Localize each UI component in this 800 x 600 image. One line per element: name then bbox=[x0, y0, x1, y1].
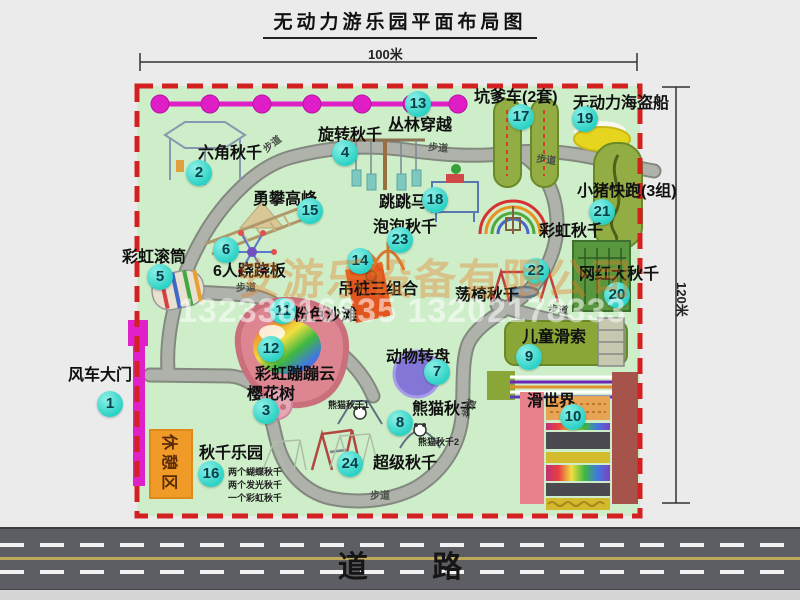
dimension-top-label: 100米 bbox=[368, 44, 403, 63]
facility-marker-jumping-horse: 18 bbox=[422, 187, 448, 213]
watermark-phone: 13233816635 13202178333 bbox=[178, 292, 626, 331]
facility-label-kengdie-car: 坑爹车(2套) bbox=[474, 90, 558, 106]
below-road-strip bbox=[0, 590, 800, 600]
facility-label-rainbow-roller: 彩虹滚筒 bbox=[122, 250, 186, 266]
walkway-label-1: 步道 bbox=[428, 143, 449, 155]
facility-marker-kids-zipline: 9 bbox=[516, 344, 542, 370]
facility-marker-rotating-swing: 4 bbox=[332, 140, 358, 166]
facility-marker-windmill-gate: 1 bbox=[97, 391, 123, 417]
page-root: 无动力游乐园平面布局图 100米 120米 bbox=[0, 0, 800, 600]
facility-marker-climbing-peak: 15 bbox=[297, 198, 323, 224]
facility-marker-swing-park: 16 bbox=[198, 461, 224, 487]
walkway-label-2: 步道 bbox=[535, 155, 556, 168]
facility-marker-piggy-run: 21 bbox=[589, 199, 615, 225]
facility-label-swing-park: 秋千乐园 bbox=[199, 446, 263, 462]
facility-marker-six-seesaw: 6 bbox=[213, 237, 239, 263]
facility-label-piggy-run: 小猪快跑(3组) bbox=[577, 184, 677, 200]
sub-label-2: 两个蝴蝶秋千 bbox=[228, 468, 282, 477]
rest-area-label: 休憩区 bbox=[159, 434, 183, 494]
walkway-label-6: 步道 bbox=[370, 492, 390, 502]
facility-label-rainbow-swing: 彩虹秋千 bbox=[539, 224, 603, 240]
facility-marker-pirate-ship: 19 bbox=[572, 106, 598, 132]
facility-label-jungle-crossing: 丛林穿越 bbox=[388, 118, 452, 134]
sub-label-4: 一个彩虹秋千 bbox=[228, 494, 282, 503]
facility-label-jumping-horse: 跳跳马 bbox=[379, 195, 427, 211]
facility-marker-rainbow-bounce-cloud: 12 bbox=[258, 336, 284, 362]
road: 道 路 bbox=[0, 527, 800, 592]
facility-marker-rainbow-roller: 5 bbox=[147, 264, 173, 290]
walkway-label-0: 步道 bbox=[262, 135, 284, 155]
facility-label-hexagon-swing: 六角秋千 bbox=[198, 146, 262, 162]
sub-label-0: 熊猫秋千1 bbox=[328, 401, 369, 410]
facility-marker-cherry-tree: 3 bbox=[253, 398, 279, 424]
facility-marker-kengdie-car: 17 bbox=[508, 104, 534, 130]
facility-marker-super-swing: 24 bbox=[337, 451, 363, 477]
facility-marker-slide-world: 10 bbox=[560, 404, 586, 430]
facility-label-super-swing: 超级秋千 bbox=[373, 456, 437, 472]
dimension-right-label: 120米 bbox=[673, 282, 692, 317]
page-title: 无动力游乐园平面布局图 bbox=[0, 7, 800, 39]
facility-marker-hexagon-swing: 2 bbox=[186, 160, 212, 186]
facility-marker-animal-turntable: 7 bbox=[424, 359, 450, 385]
road-label: 道 路 bbox=[0, 542, 800, 586]
facility-label-windmill-gate: 风车大门 bbox=[68, 368, 132, 384]
facility-marker-jungle-crossing: 13 bbox=[405, 91, 431, 117]
sub-label-1: 熊猫秋千2 bbox=[418, 438, 459, 447]
sub-label-3: 两个发光秋千 bbox=[228, 481, 282, 490]
facility-marker-panda-swing: 8 bbox=[387, 410, 413, 436]
facility-label-rainbow-bounce-cloud: 彩虹蹦蹦云 bbox=[255, 367, 335, 383]
